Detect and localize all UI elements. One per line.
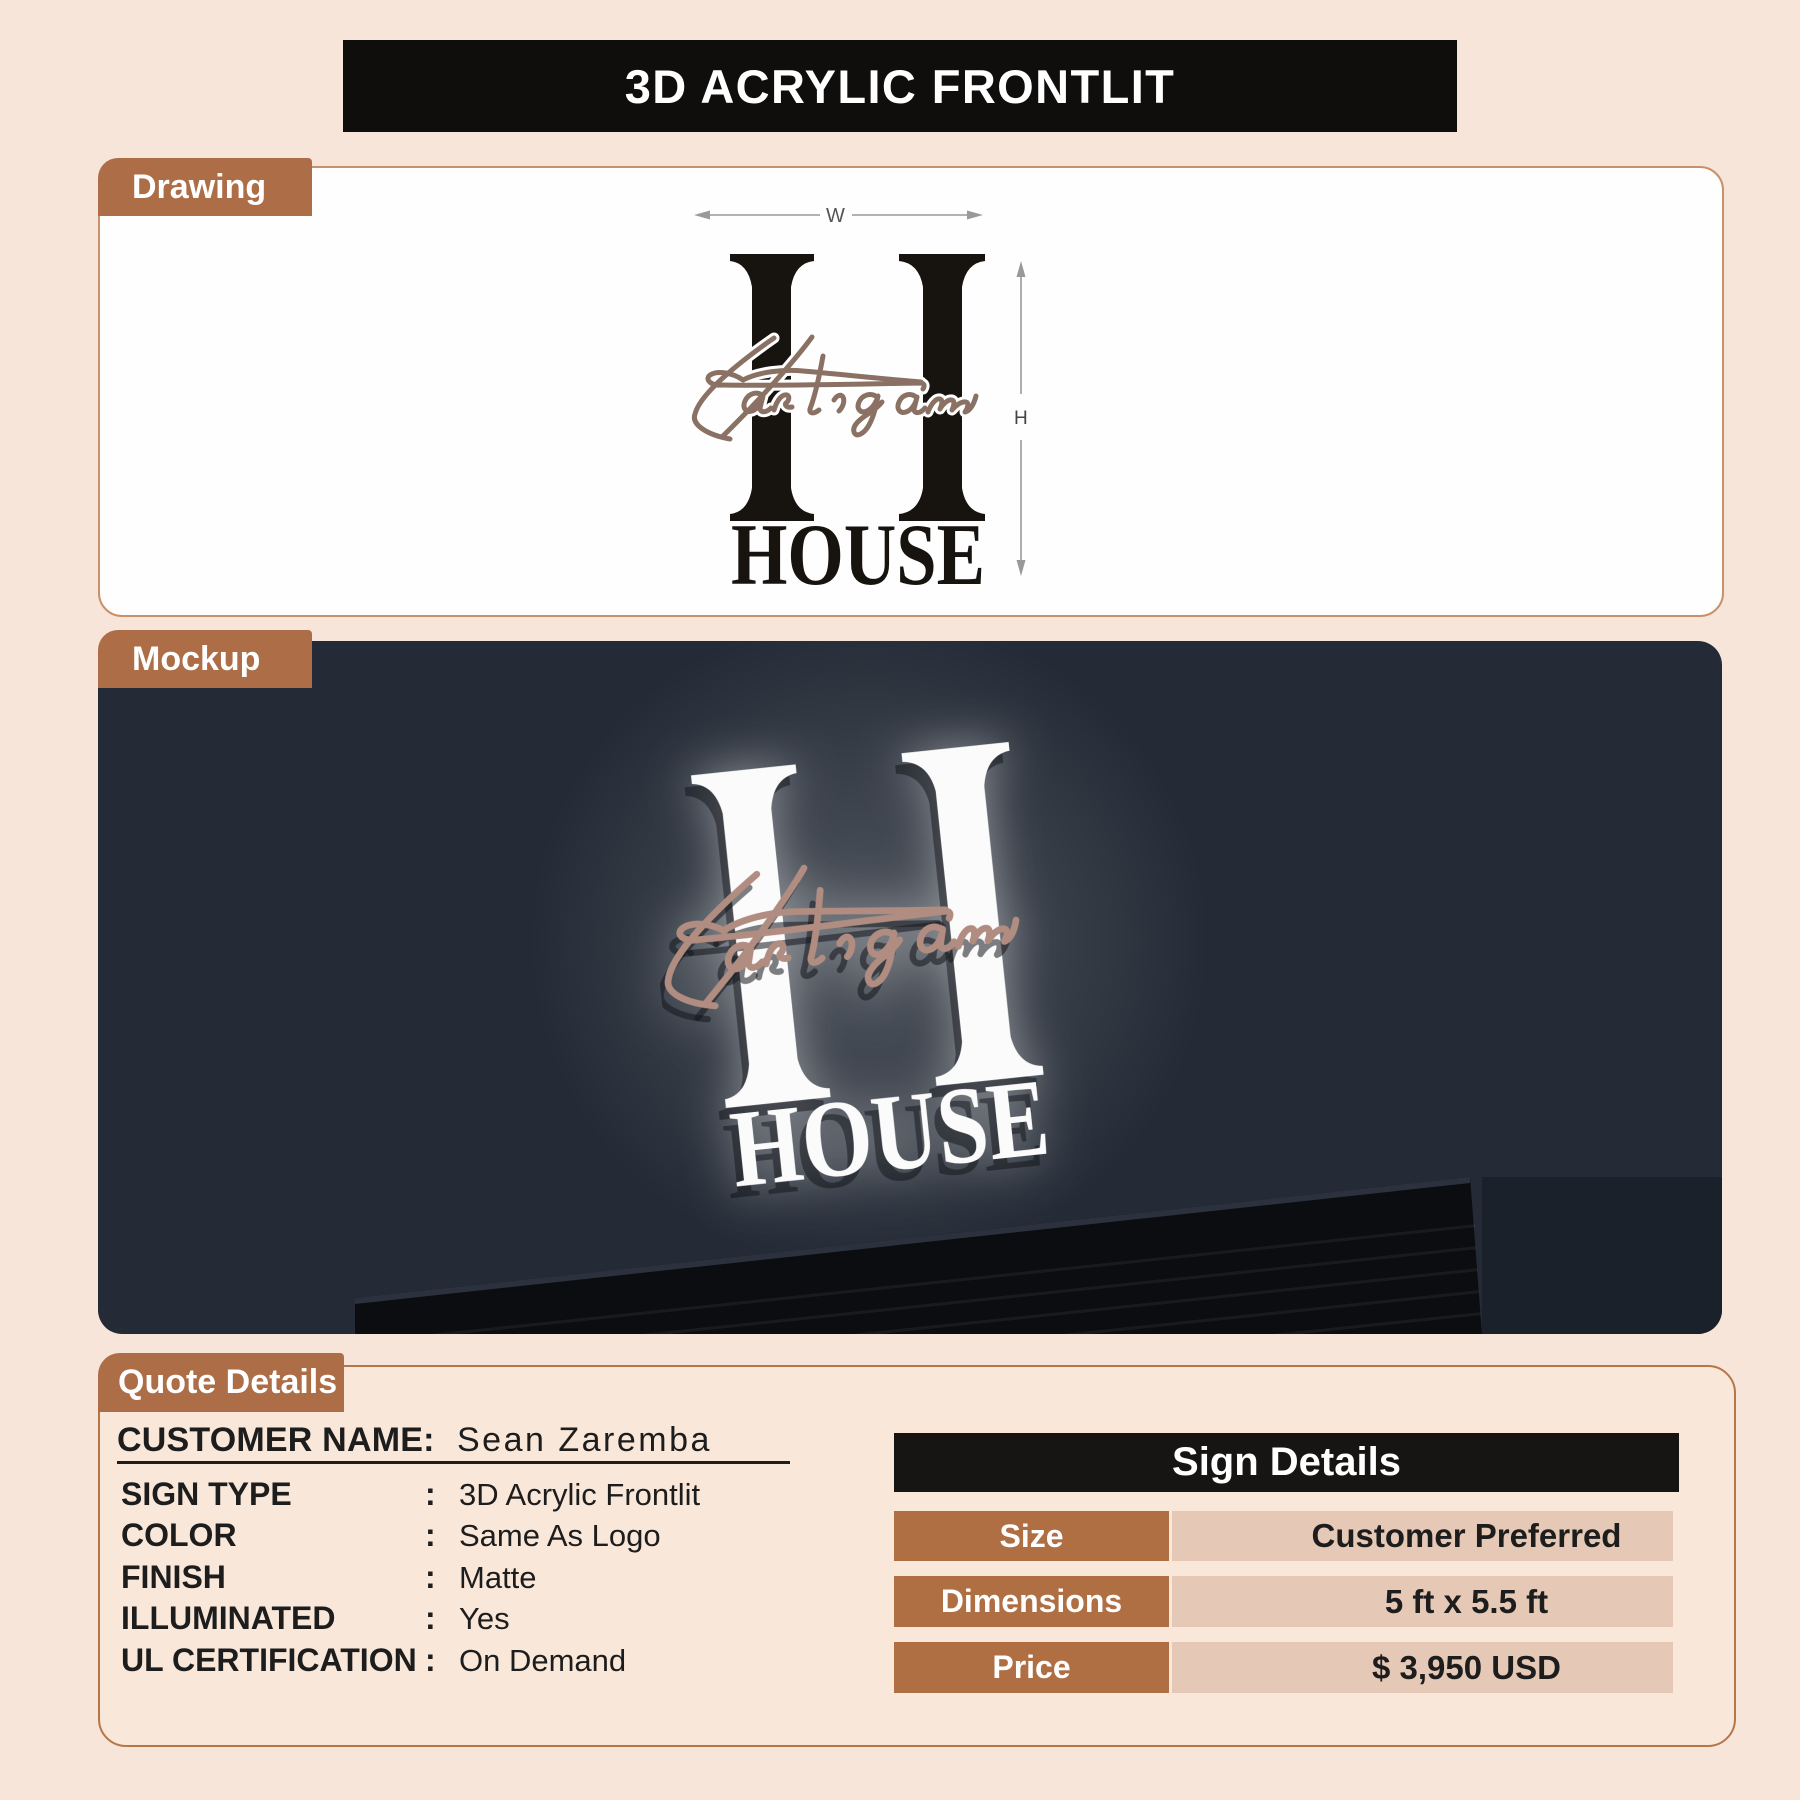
- svg-text:W: W: [826, 205, 845, 227]
- svg-text:H: H: [1014, 408, 1028, 429]
- svg-text:HOUSE: HOUSE: [731, 507, 985, 594]
